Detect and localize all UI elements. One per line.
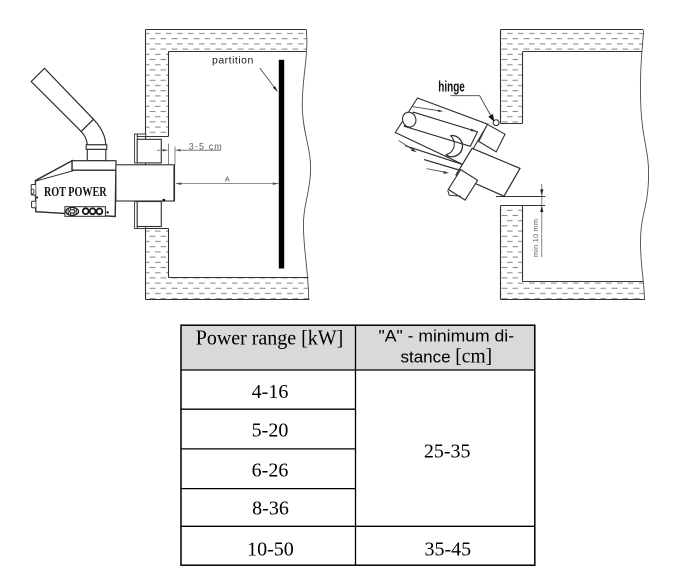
svg-text:10-50: 10-50 <box>247 538 294 560</box>
svg-text:Power range [kW]: Power range [kW] <box>196 326 344 350</box>
svg-text:6-26: 6-26 <box>252 459 289 481</box>
svg-text:ROT POWER: ROT POWER <box>44 184 107 199</box>
svg-text:"A" - minimum di-: "A" - minimum di- <box>379 327 515 346</box>
svg-text:stance [cm]: stance [cm] <box>400 346 492 367</box>
svg-text:partition: partition <box>212 55 254 67</box>
svg-text:25-35: 25-35 <box>424 440 471 462</box>
svg-text:3-5 cm: 3-5 cm <box>189 142 223 152</box>
svg-text:hinge: hinge <box>438 78 465 95</box>
svg-text:8-36: 8-36 <box>252 497 289 519</box>
svg-text:35-45: 35-45 <box>424 538 471 560</box>
svg-text:A: A <box>225 174 230 183</box>
svg-text:5-20: 5-20 <box>252 420 289 442</box>
svg-text:4-16: 4-16 <box>252 381 289 403</box>
svg-text:min 10 mm: min 10 mm <box>531 219 540 257</box>
